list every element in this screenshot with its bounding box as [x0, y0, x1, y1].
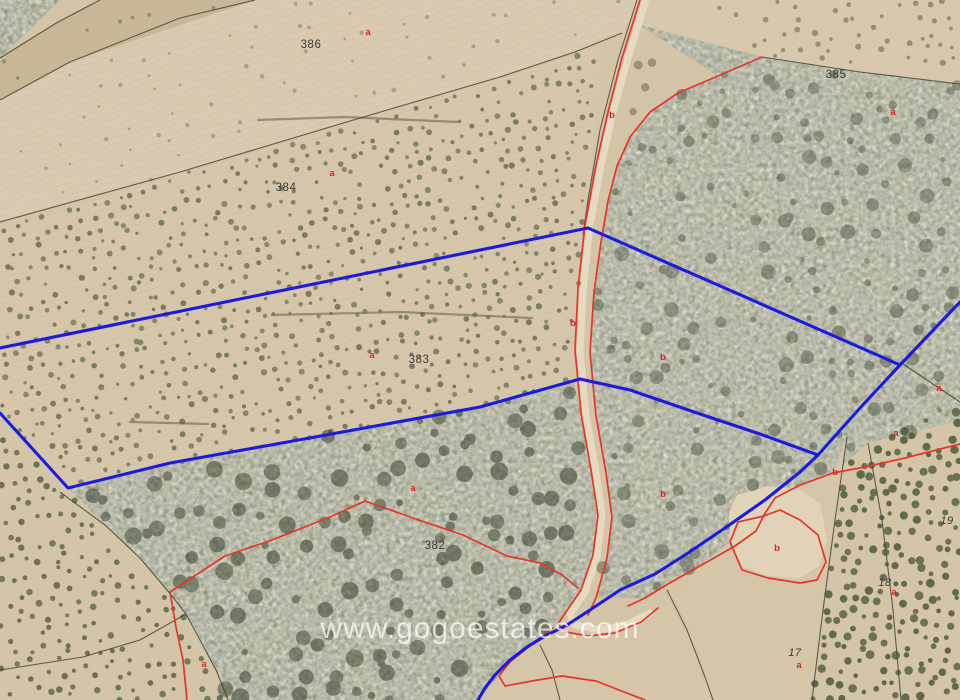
parcel-number-label: 386 [301, 39, 322, 51]
subparcel-letter-a: a [891, 587, 897, 598]
parcel-number-label: 384 [276, 182, 297, 194]
aerial-map: 386384383382385191817 aaaaaaaaaabbbbbb [0, 0, 960, 700]
subparcel-letter-b: b [832, 467, 838, 478]
parcel-number-label: 383 [409, 354, 430, 366]
subparcel-letter-a: a [796, 660, 802, 671]
subparcel-letter-a: a [201, 659, 207, 670]
subparcel-letter-a: a [329, 168, 335, 179]
photo-grain-overlay [0, 0, 960, 700]
subparcel-letter-a: a [410, 483, 416, 494]
parcel-number-label: 385 [826, 69, 847, 81]
map-viewport[interactable]: 386384383382385191817 aaaaaaaaaabbbbbb w… [0, 0, 960, 700]
subparcel-letter-a: a [936, 383, 942, 394]
subparcel-letter-a: a [893, 428, 899, 439]
subparcel-letter-b: b [774, 543, 780, 554]
subparcel-letter-b: b [660, 489, 666, 500]
subparcel-letter-a: a [890, 107, 896, 118]
subparcel-letter-a: a [369, 350, 375, 361]
subparcel-letter-b: b [660, 352, 666, 363]
parcel-number-label: 17 [788, 647, 802, 659]
parcel-number-label: 18 [878, 577, 892, 589]
parcel-number-label: 382 [425, 540, 446, 552]
subparcel-letter-b: b [570, 318, 576, 329]
subparcel-letter-b: b [609, 110, 615, 121]
subparcel-letter-a: a [365, 27, 371, 38]
parcel-number-label: 19 [940, 515, 953, 527]
